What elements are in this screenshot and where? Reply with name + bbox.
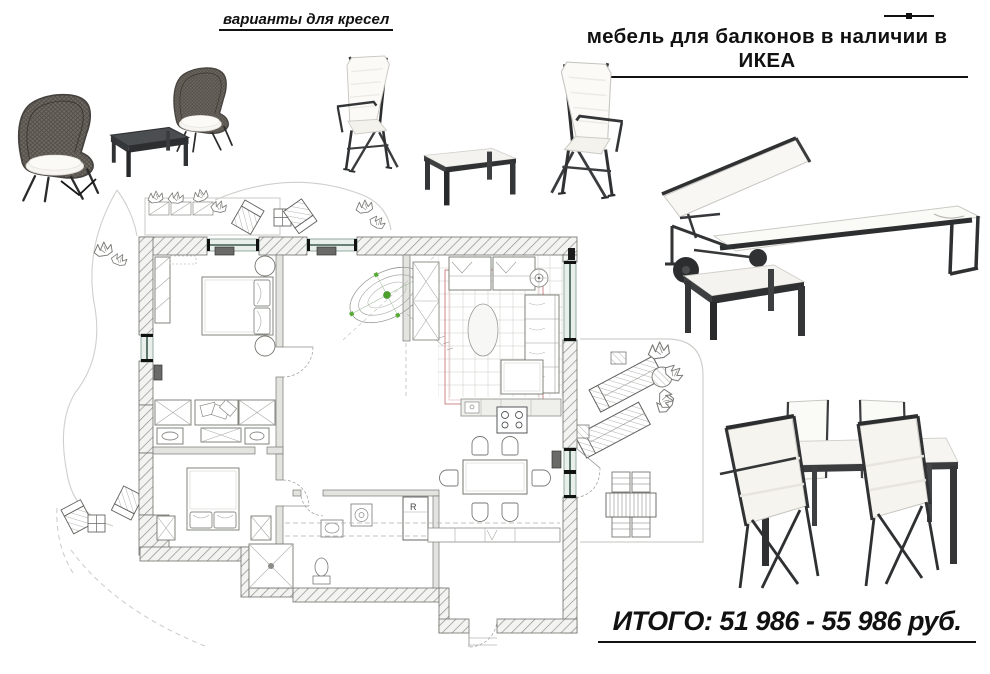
presentation-page: варианты для кресел мебель для балконов … bbox=[0, 0, 990, 674]
fridge-label: R bbox=[410, 502, 417, 512]
bedroom-1 bbox=[155, 256, 275, 444]
left-garden-chairs bbox=[61, 242, 143, 534]
folding-chair-left bbox=[337, 56, 398, 172]
outdoor-dining-set-photo bbox=[700, 378, 990, 593]
black-side-table bbox=[111, 128, 189, 178]
bedroom-2 bbox=[157, 468, 271, 540]
title-decor-line bbox=[884, 15, 934, 17]
leader-arrow-mark bbox=[61, 179, 96, 195]
apartment-floor-plan: R bbox=[55, 178, 705, 658]
living-room bbox=[449, 257, 559, 394]
top-balcony bbox=[145, 188, 387, 235]
right-balcony bbox=[574, 339, 703, 542]
dining-area bbox=[428, 437, 560, 543]
sun-lounger bbox=[662, 138, 980, 283]
balcony-dining-plan bbox=[606, 472, 656, 537]
hall bbox=[338, 254, 453, 350]
chair-variants-label: варианты для кресел bbox=[219, 11, 393, 31]
title-decor-dot bbox=[906, 13, 912, 19]
total-price: ИТОГО: 51 986 - 55 986 руб. bbox=[598, 606, 976, 643]
